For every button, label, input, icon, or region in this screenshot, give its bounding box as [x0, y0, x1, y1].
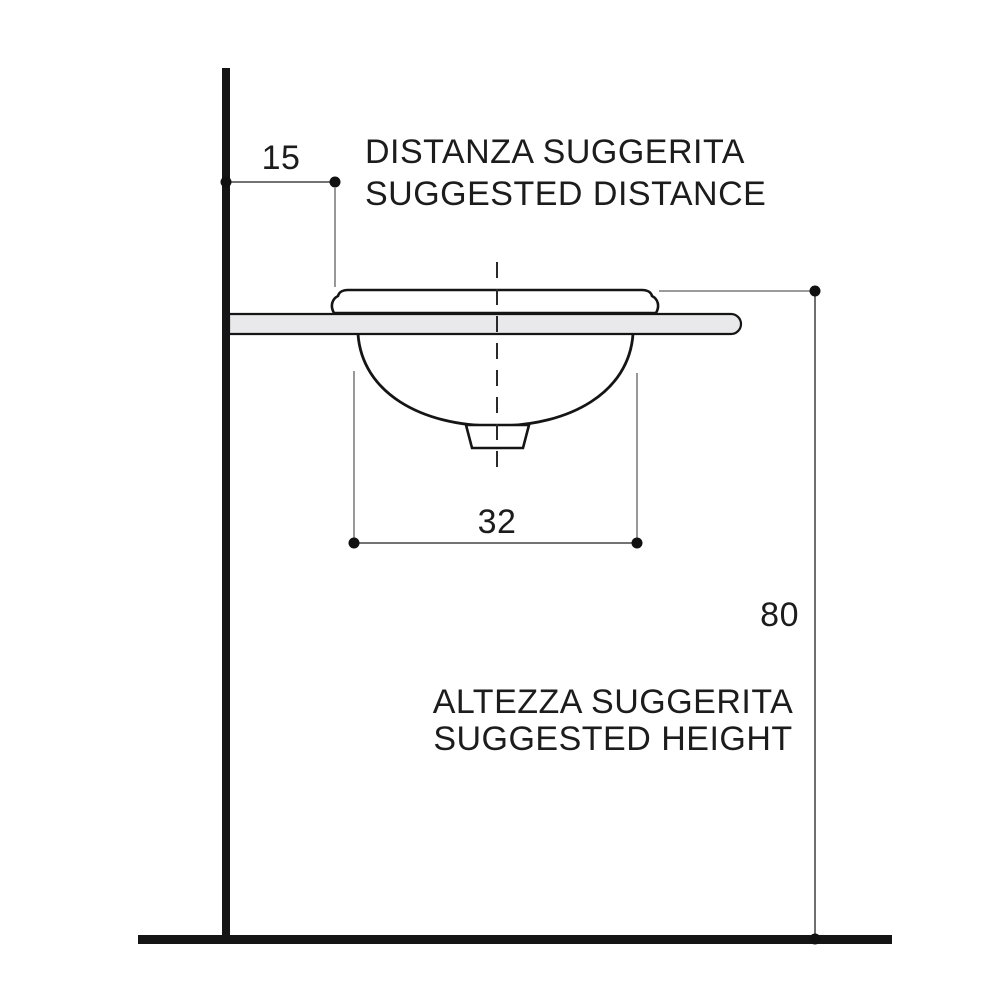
- wall-line: [222, 68, 230, 940]
- width-dim-value: 32: [437, 501, 557, 543]
- distance-dim-value: 15: [226, 137, 336, 179]
- width-dim-dot-left: [349, 538, 360, 549]
- washbasin-rim: [332, 290, 658, 313]
- height-note-italian: ALTEZZA SUGGERITA: [363, 684, 863, 721]
- height-dim-value: 80: [679, 594, 799, 636]
- washbasin-bowl: [358, 334, 633, 426]
- floor-line: [138, 935, 892, 944]
- countertop: [229, 314, 741, 334]
- width-dim-dot-right: [632, 538, 643, 549]
- installation-diagram: 15 DISTANZA SUGGERITA SUGGESTED DISTANCE…: [0, 0, 1000, 1000]
- distance-note-english: SUGGESTED DISTANCE: [365, 173, 766, 215]
- height-dim-dot-top: [810, 286, 821, 297]
- height-dim-dot-bottom: [810, 934, 821, 945]
- height-note-english: SUGGESTED HEIGHT: [363, 721, 863, 758]
- distance-note-italian: DISTANZA SUGGERITA: [365, 131, 745, 173]
